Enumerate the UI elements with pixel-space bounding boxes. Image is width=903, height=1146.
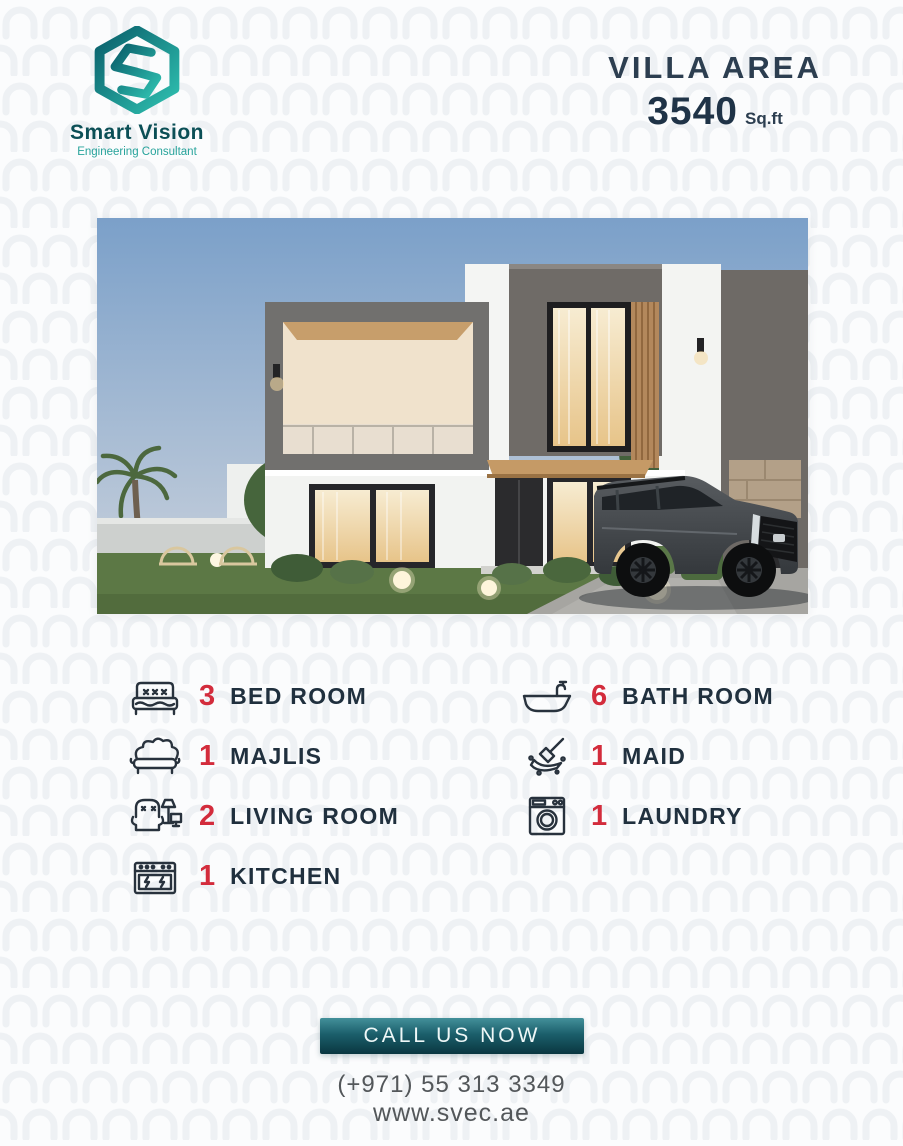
feature-count: 6 <box>591 682 607 711</box>
brand-name: Smart Vision <box>52 121 222 145</box>
feature-label: LIVING ROOM <box>230 805 399 828</box>
feature-bathroom: 6 BATH ROOM <box>518 666 806 726</box>
brand-tagline: Engineering Consultant <box>52 146 222 158</box>
feature-count: 1 <box>591 802 607 831</box>
villa-area-block: VILLA AREA 3540Sq.ft <box>585 50 845 134</box>
villa-photo <box>97 218 808 614</box>
feature-label: BATH ROOM <box>622 685 774 708</box>
feature-count: 1 <box>199 742 215 771</box>
washing-machine-icon <box>518 792 576 840</box>
villa-area-label: VILLA AREA <box>585 50 845 86</box>
feature-count: 1 <box>591 742 607 771</box>
feature-count: 2 <box>199 802 215 831</box>
cleaning-icon <box>518 732 576 780</box>
villa-area-unit: Sq.ft <box>745 109 783 128</box>
feature-kitchen: 1 KITCHEN <box>126 846 518 906</box>
smart-vision-logo-icon <box>81 26 193 114</box>
feature-label: MAID <box>622 745 686 768</box>
website-url[interactable]: www.svec.ae <box>0 1099 903 1128</box>
feature-label: KITCHEN <box>230 865 341 888</box>
armchair-lamp-icon <box>126 792 184 840</box>
features-section: 3 BED ROOM 1 MAJLIS <box>126 666 806 906</box>
brand-logo-block: Smart Vision Engineering Consultant <box>52 26 222 158</box>
stove-icon <box>126 852 184 900</box>
feature-maid: 1 MAID <box>518 726 806 786</box>
bathtub-icon <box>518 672 576 720</box>
feature-count: 3 <box>199 682 215 711</box>
call-us-now-button[interactable]: CALL US NOW <box>320 1018 584 1054</box>
feature-laundry: 1 LAUNDRY <box>518 786 806 846</box>
feature-majlis: 1 MAJLIS <box>126 726 518 786</box>
feature-label: LAUNDRY <box>622 805 743 828</box>
phone-number[interactable]: (+971) 55 313 3349 <box>0 1071 903 1099</box>
feature-label: BED ROOM <box>230 685 367 708</box>
feature-label: MAJLIS <box>230 745 322 768</box>
sofa-icon <box>126 732 184 780</box>
villa-area-value: 3540 <box>647 90 738 133</box>
feature-bedroom: 3 BED ROOM <box>126 666 518 726</box>
bed-icon <box>126 672 184 720</box>
feature-count: 1 <box>199 862 215 891</box>
feature-living-room: 2 LIVING ROOM <box>126 786 518 846</box>
